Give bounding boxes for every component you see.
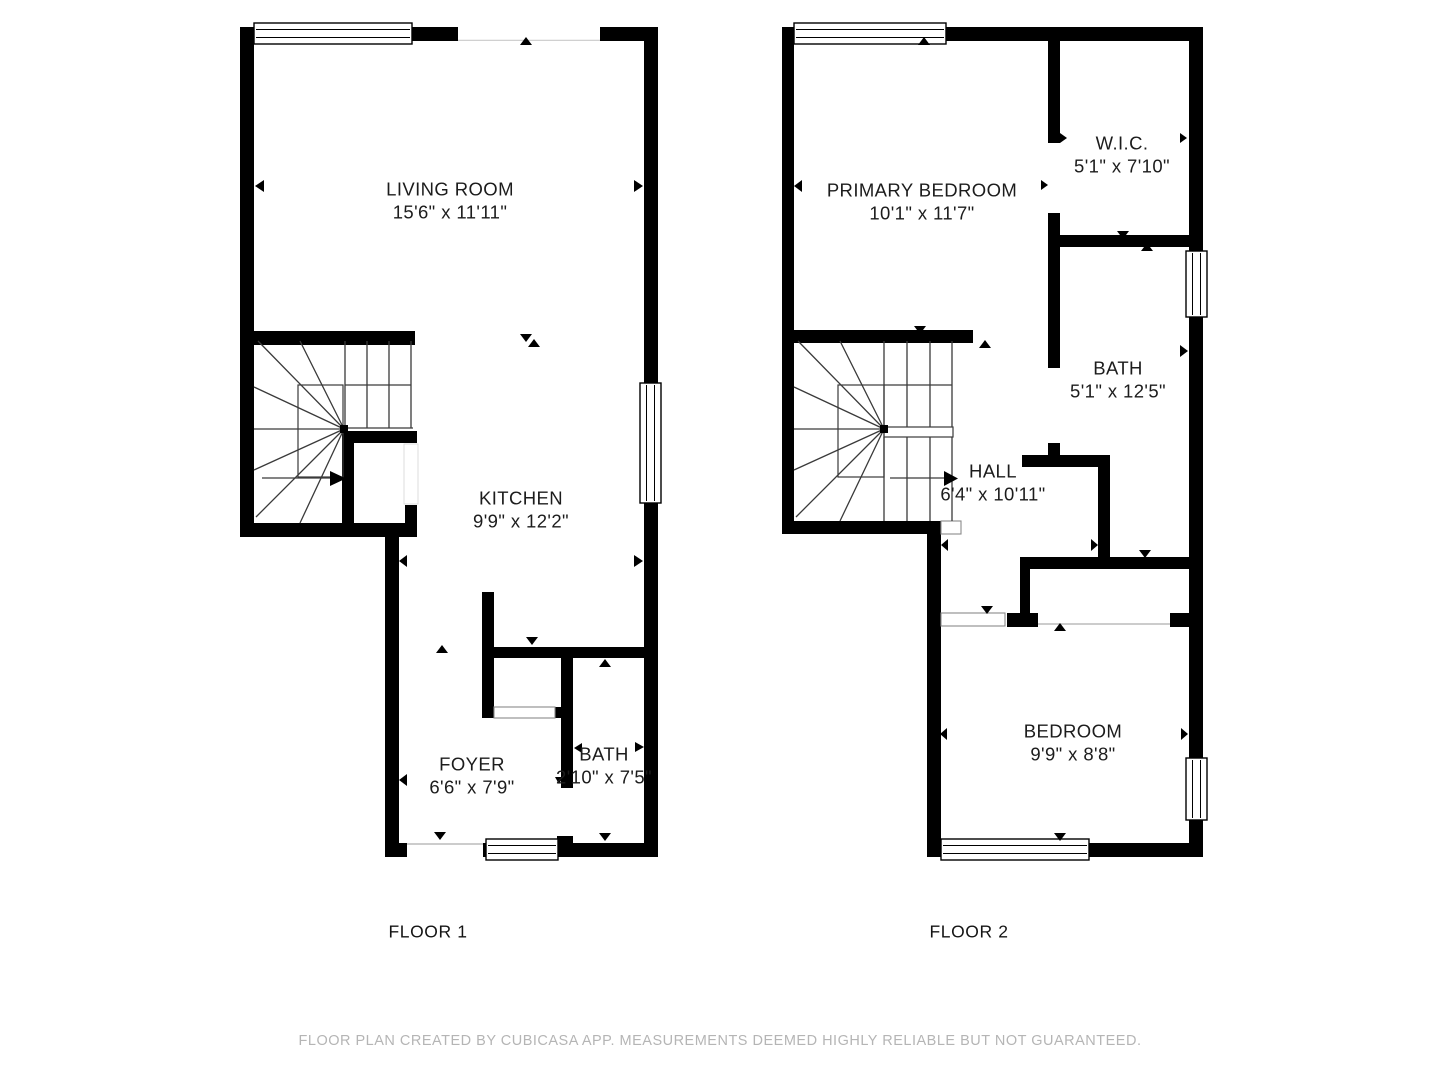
wall xyxy=(482,647,658,658)
room-name: KITCHEN xyxy=(473,488,569,511)
room-label-primary-bedroom: PRIMARY BEDROOM 10'1" x 11'7" xyxy=(827,180,1017,225)
room-name: PRIMARY BEDROOM xyxy=(827,180,1017,203)
room-name: W.I.C. xyxy=(1074,133,1170,156)
room-name: BATH xyxy=(1070,358,1166,381)
bedroom-threshold xyxy=(941,613,1005,626)
wall xyxy=(1048,41,1060,143)
window xyxy=(640,383,661,503)
footer-disclaimer: FLOOR PLAN CREATED BY CUBICASA APP. MEAS… xyxy=(0,1033,1440,1049)
stair-threshold xyxy=(941,521,961,534)
opening-marker xyxy=(528,339,540,347)
opening-marker xyxy=(436,645,448,653)
wall xyxy=(1098,455,1110,569)
room-dims: 5'1" x 7'10" xyxy=(1074,155,1170,178)
opening-marker xyxy=(1139,550,1151,558)
window xyxy=(486,839,558,860)
wall xyxy=(240,27,254,537)
wall xyxy=(1048,235,1203,247)
window xyxy=(1186,758,1207,820)
opening-marker xyxy=(399,555,407,567)
opening-markers-floor1 xyxy=(255,37,644,841)
room-dims: 5'1" x 12'5" xyxy=(1070,380,1166,403)
wall xyxy=(385,843,407,857)
opening-marker xyxy=(599,659,611,667)
room-label-living-room: LIVING ROOM 15'6" x 11'11" xyxy=(386,179,514,224)
opening-marker xyxy=(940,728,947,740)
room-dims: 10'1" x 11'7" xyxy=(827,202,1017,225)
wall xyxy=(405,505,417,537)
window xyxy=(941,839,1089,860)
wall xyxy=(782,521,927,534)
room-name: FOYER xyxy=(429,754,514,777)
room-label-bath-1: BATH 2'10" x 7'5" xyxy=(556,744,652,789)
wall xyxy=(1048,443,1060,457)
floor1-plan xyxy=(240,23,661,860)
room-dims: 2'10" x 7'5" xyxy=(556,766,652,789)
opening-marker xyxy=(1180,345,1188,357)
opening-marker xyxy=(1181,728,1188,740)
opening-marker xyxy=(1091,539,1098,551)
room-dims: 9'9" x 8'8" xyxy=(1024,743,1122,766)
room-name: HALL xyxy=(940,461,1045,484)
window xyxy=(1186,251,1207,317)
opening-marker xyxy=(979,340,991,348)
room-dims: 15'6" x 11'11" xyxy=(386,201,514,224)
wall xyxy=(782,330,973,343)
wall xyxy=(342,431,354,537)
wall xyxy=(1170,613,1189,627)
opening-marker xyxy=(255,180,264,192)
room-dims: 6'6" x 7'9" xyxy=(429,776,514,799)
closet-door-opening xyxy=(404,444,418,504)
floor1-walls xyxy=(240,27,658,857)
opening-marker xyxy=(634,180,643,192)
room-label-kitchen: KITCHEN 9'9" x 12'2" xyxy=(473,488,569,533)
opening-marker xyxy=(520,37,532,45)
wall xyxy=(927,521,941,857)
opening-marker xyxy=(1041,180,1048,190)
staircase-floor2 xyxy=(794,341,958,521)
wall xyxy=(385,537,399,857)
opening-marker xyxy=(526,637,538,645)
room-name: LIVING ROOM xyxy=(386,179,514,202)
floor1-title: FLOOR 1 xyxy=(388,922,467,943)
floorplan-canvas xyxy=(0,0,1440,1080)
opening-marker xyxy=(520,334,532,342)
opening-marker xyxy=(794,180,802,192)
opening-marker xyxy=(599,833,611,841)
closet-threshold xyxy=(494,707,555,718)
room-label-wic: W.I.C. 5'1" x 7'10" xyxy=(1074,133,1170,178)
wall xyxy=(1007,613,1038,627)
room-label-bedroom: BEDROOM 9'9" x 8'8" xyxy=(1024,721,1122,766)
opening-marker xyxy=(1060,133,1067,143)
room-dims: 9'9" x 12'2" xyxy=(473,510,569,533)
wall xyxy=(1189,27,1203,857)
opening-marker xyxy=(1180,133,1187,143)
opening-marker xyxy=(434,832,446,840)
opening-marker xyxy=(399,774,407,786)
room-name: BATH xyxy=(556,744,652,767)
room-dims: 6'4" x 10'11" xyxy=(940,483,1045,506)
wall xyxy=(557,836,573,848)
wall xyxy=(782,27,794,534)
room-label-foyer: FOYER 6'6" x 7'9" xyxy=(429,754,514,799)
opening-marker xyxy=(941,539,948,551)
floorplan-page: LIVING ROOM 15'6" x 11'11" KITCHEN 9'9" … xyxy=(0,0,1440,1080)
wall xyxy=(1020,557,1203,569)
floor2-title: FLOOR 2 xyxy=(929,922,1008,943)
room-label-bath-2: BATH 5'1" x 12'5" xyxy=(1070,358,1166,403)
opening-marker xyxy=(634,555,643,567)
room-name: BEDROOM xyxy=(1024,721,1122,744)
window xyxy=(254,23,412,44)
room-label-hall: HALL 6'4" x 10'11" xyxy=(940,461,1045,506)
wall xyxy=(240,523,417,537)
